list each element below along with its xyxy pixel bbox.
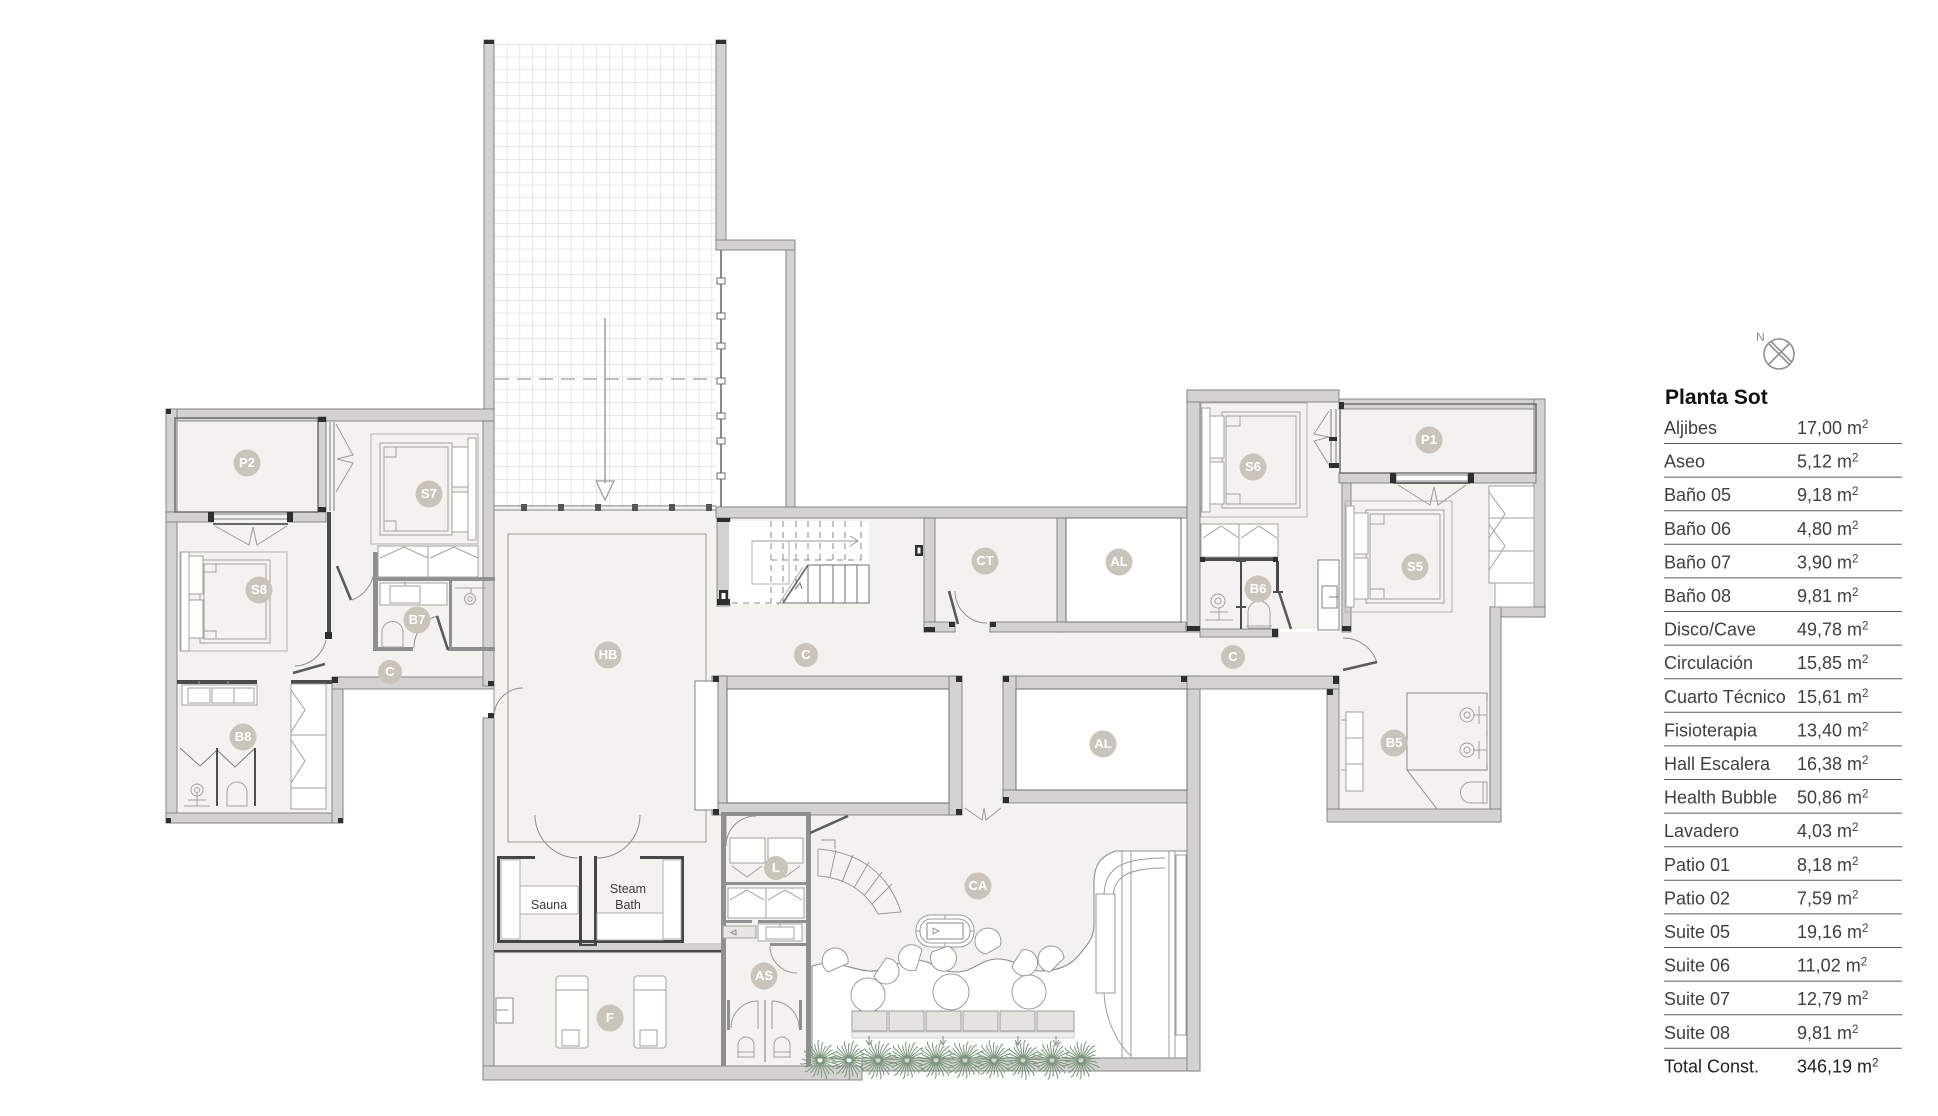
svg-text:Health Bubble: Health Bubble	[1664, 788, 1777, 808]
svg-text:Baño 08: Baño 08	[1664, 586, 1731, 606]
svg-text:7,59 m2: 7,59 m2	[1797, 888, 1858, 908]
svg-text:P2: P2	[239, 455, 255, 470]
svg-text:Patio 01: Patio 01	[1664, 855, 1730, 875]
svg-text:9,18 m2: 9,18 m2	[1797, 485, 1858, 505]
svg-text:Suite 05: Suite 05	[1664, 922, 1730, 942]
svg-text:C: C	[1228, 649, 1238, 664]
svg-text:Baño 05: Baño 05	[1664, 485, 1731, 505]
svg-text:Suite 06: Suite 06	[1664, 956, 1730, 976]
svg-text:Baño 06: Baño 06	[1664, 519, 1731, 539]
svg-text:CT: CT	[976, 553, 993, 568]
svg-text:AL: AL	[1094, 736, 1111, 751]
svg-text:3,90 m2: 3,90 m2	[1797, 552, 1858, 572]
svg-text:P1: P1	[1421, 432, 1437, 447]
svg-text:5,12 m2: 5,12 m2	[1797, 452, 1858, 472]
svg-text:Steam: Steam	[610, 882, 646, 896]
svg-text:Suite 08: Suite 08	[1664, 1023, 1730, 1043]
svg-text:N: N	[1756, 330, 1765, 344]
svg-text:Cuarto Técnico: Cuarto Técnico	[1664, 687, 1786, 707]
svg-text:S6: S6	[1245, 459, 1261, 474]
svg-text:Aljibes: Aljibes	[1664, 418, 1717, 438]
svg-text:HB: HB	[599, 647, 618, 662]
svg-text:B8: B8	[235, 729, 252, 744]
svg-text:15,85 m2: 15,85 m2	[1797, 653, 1868, 673]
svg-text:Baño 07: Baño 07	[1664, 552, 1731, 572]
svg-text:9,81 m2: 9,81 m2	[1797, 586, 1858, 606]
svg-text:CA: CA	[969, 878, 988, 893]
svg-text:Circulación: Circulación	[1664, 653, 1753, 673]
svg-text:346,19 m2: 346,19 m2	[1797, 1056, 1878, 1076]
svg-text:F: F	[606, 1010, 614, 1025]
svg-text:4,80 m2: 4,80 m2	[1797, 519, 1858, 539]
svg-text:4,03 m2: 4,03 m2	[1797, 821, 1858, 841]
svg-text:Sauna: Sauna	[531, 898, 567, 912]
svg-text:AS: AS	[755, 968, 773, 983]
svg-text:Patio 02: Patio 02	[1664, 888, 1730, 908]
svg-text:S7: S7	[421, 486, 437, 501]
svg-text:Disco/Cave: Disco/Cave	[1664, 620, 1756, 640]
svg-text:Total Const.: Total Const.	[1664, 1056, 1759, 1076]
svg-text:Aseo: Aseo	[1664, 452, 1705, 472]
svg-text:13,40 m2: 13,40 m2	[1797, 720, 1868, 740]
svg-text:S5: S5	[1407, 559, 1423, 574]
svg-text:Hall Escalera: Hall Escalera	[1664, 754, 1771, 774]
svg-text:C: C	[801, 647, 811, 662]
svg-text:16,38 m2: 16,38 m2	[1797, 754, 1868, 774]
svg-text:Bath: Bath	[615, 898, 641, 912]
svg-text:Fisioterapia: Fisioterapia	[1664, 720, 1758, 740]
svg-text:15,61 m2: 15,61 m2	[1797, 687, 1868, 707]
svg-text:11,02 m2: 11,02 m2	[1797, 956, 1867, 976]
svg-text:Planta Sot: Planta Sot	[1665, 386, 1768, 409]
svg-text:17,00 m2: 17,00 m2	[1797, 418, 1868, 438]
svg-text:S8: S8	[251, 582, 267, 597]
svg-text:AL: AL	[1110, 554, 1127, 569]
svg-text:C: C	[385, 664, 395, 679]
svg-text:8,18 m2: 8,18 m2	[1797, 855, 1858, 875]
svg-text:B6: B6	[1250, 581, 1267, 596]
svg-text:49,78 m2: 49,78 m2	[1797, 620, 1868, 640]
svg-text:B5: B5	[1386, 735, 1403, 750]
svg-text:12,79 m2: 12,79 m2	[1797, 989, 1868, 1009]
svg-text:B7: B7	[409, 612, 426, 627]
svg-text:Suite 07: Suite 07	[1664, 989, 1730, 1009]
svg-text:9,81 m2: 9,81 m2	[1797, 1023, 1858, 1043]
svg-text:L: L	[772, 860, 780, 875]
svg-text:Lavadero: Lavadero	[1664, 821, 1739, 841]
svg-text:19,16 m2: 19,16 m2	[1797, 922, 1868, 942]
svg-text:50,86 m2: 50,86 m2	[1797, 788, 1868, 808]
